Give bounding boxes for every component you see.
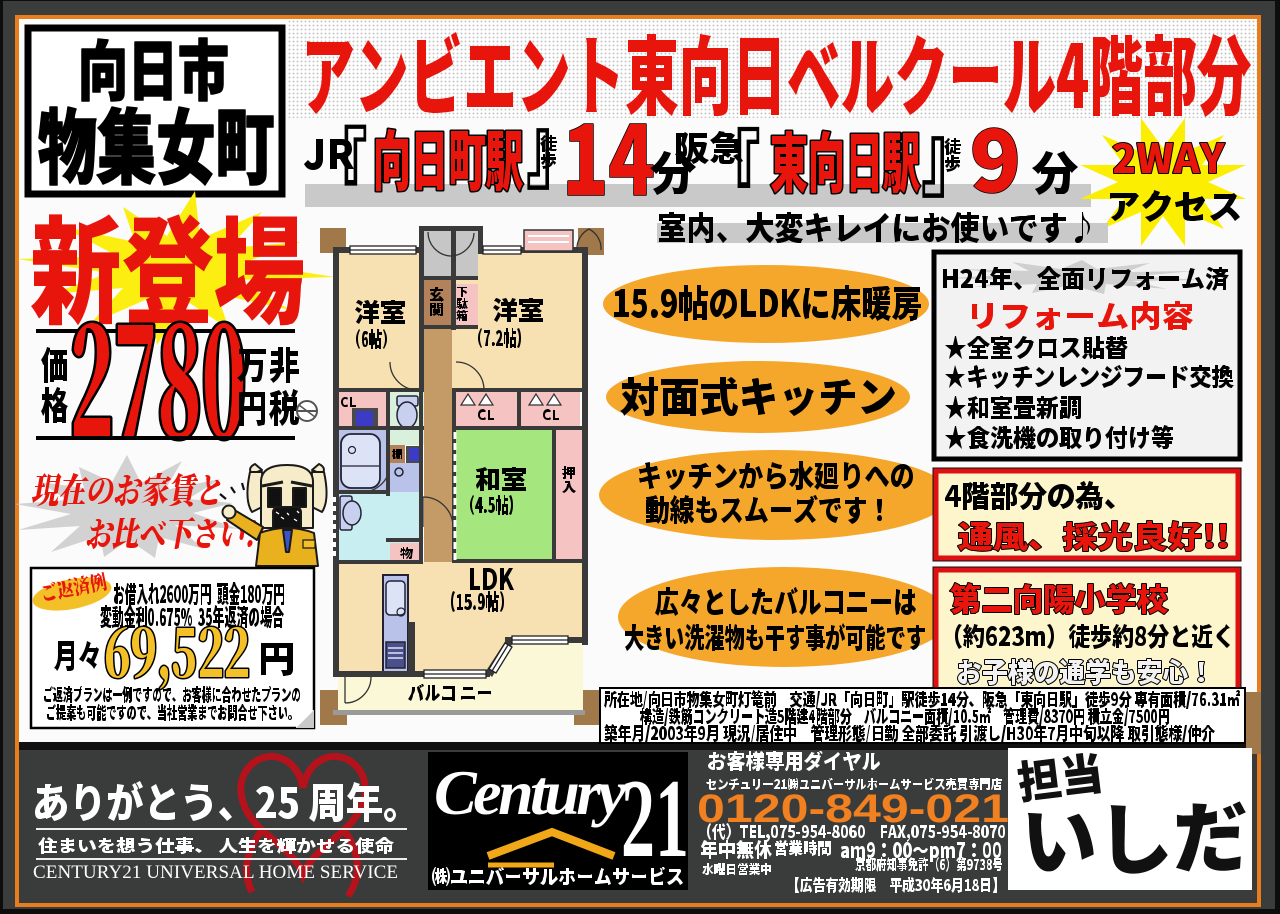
svg-text:Century: Century xyxy=(434,757,627,828)
svg-text:21: 21 xyxy=(621,757,689,881)
svg-text:0120-849-021: 0120-849-021 xyxy=(697,787,1009,831)
svg-text:CENTURY21 UNIVERSAL HOME SE: CENTURY21 UNIVERSAL HOME SERVICE xyxy=(33,862,398,883)
